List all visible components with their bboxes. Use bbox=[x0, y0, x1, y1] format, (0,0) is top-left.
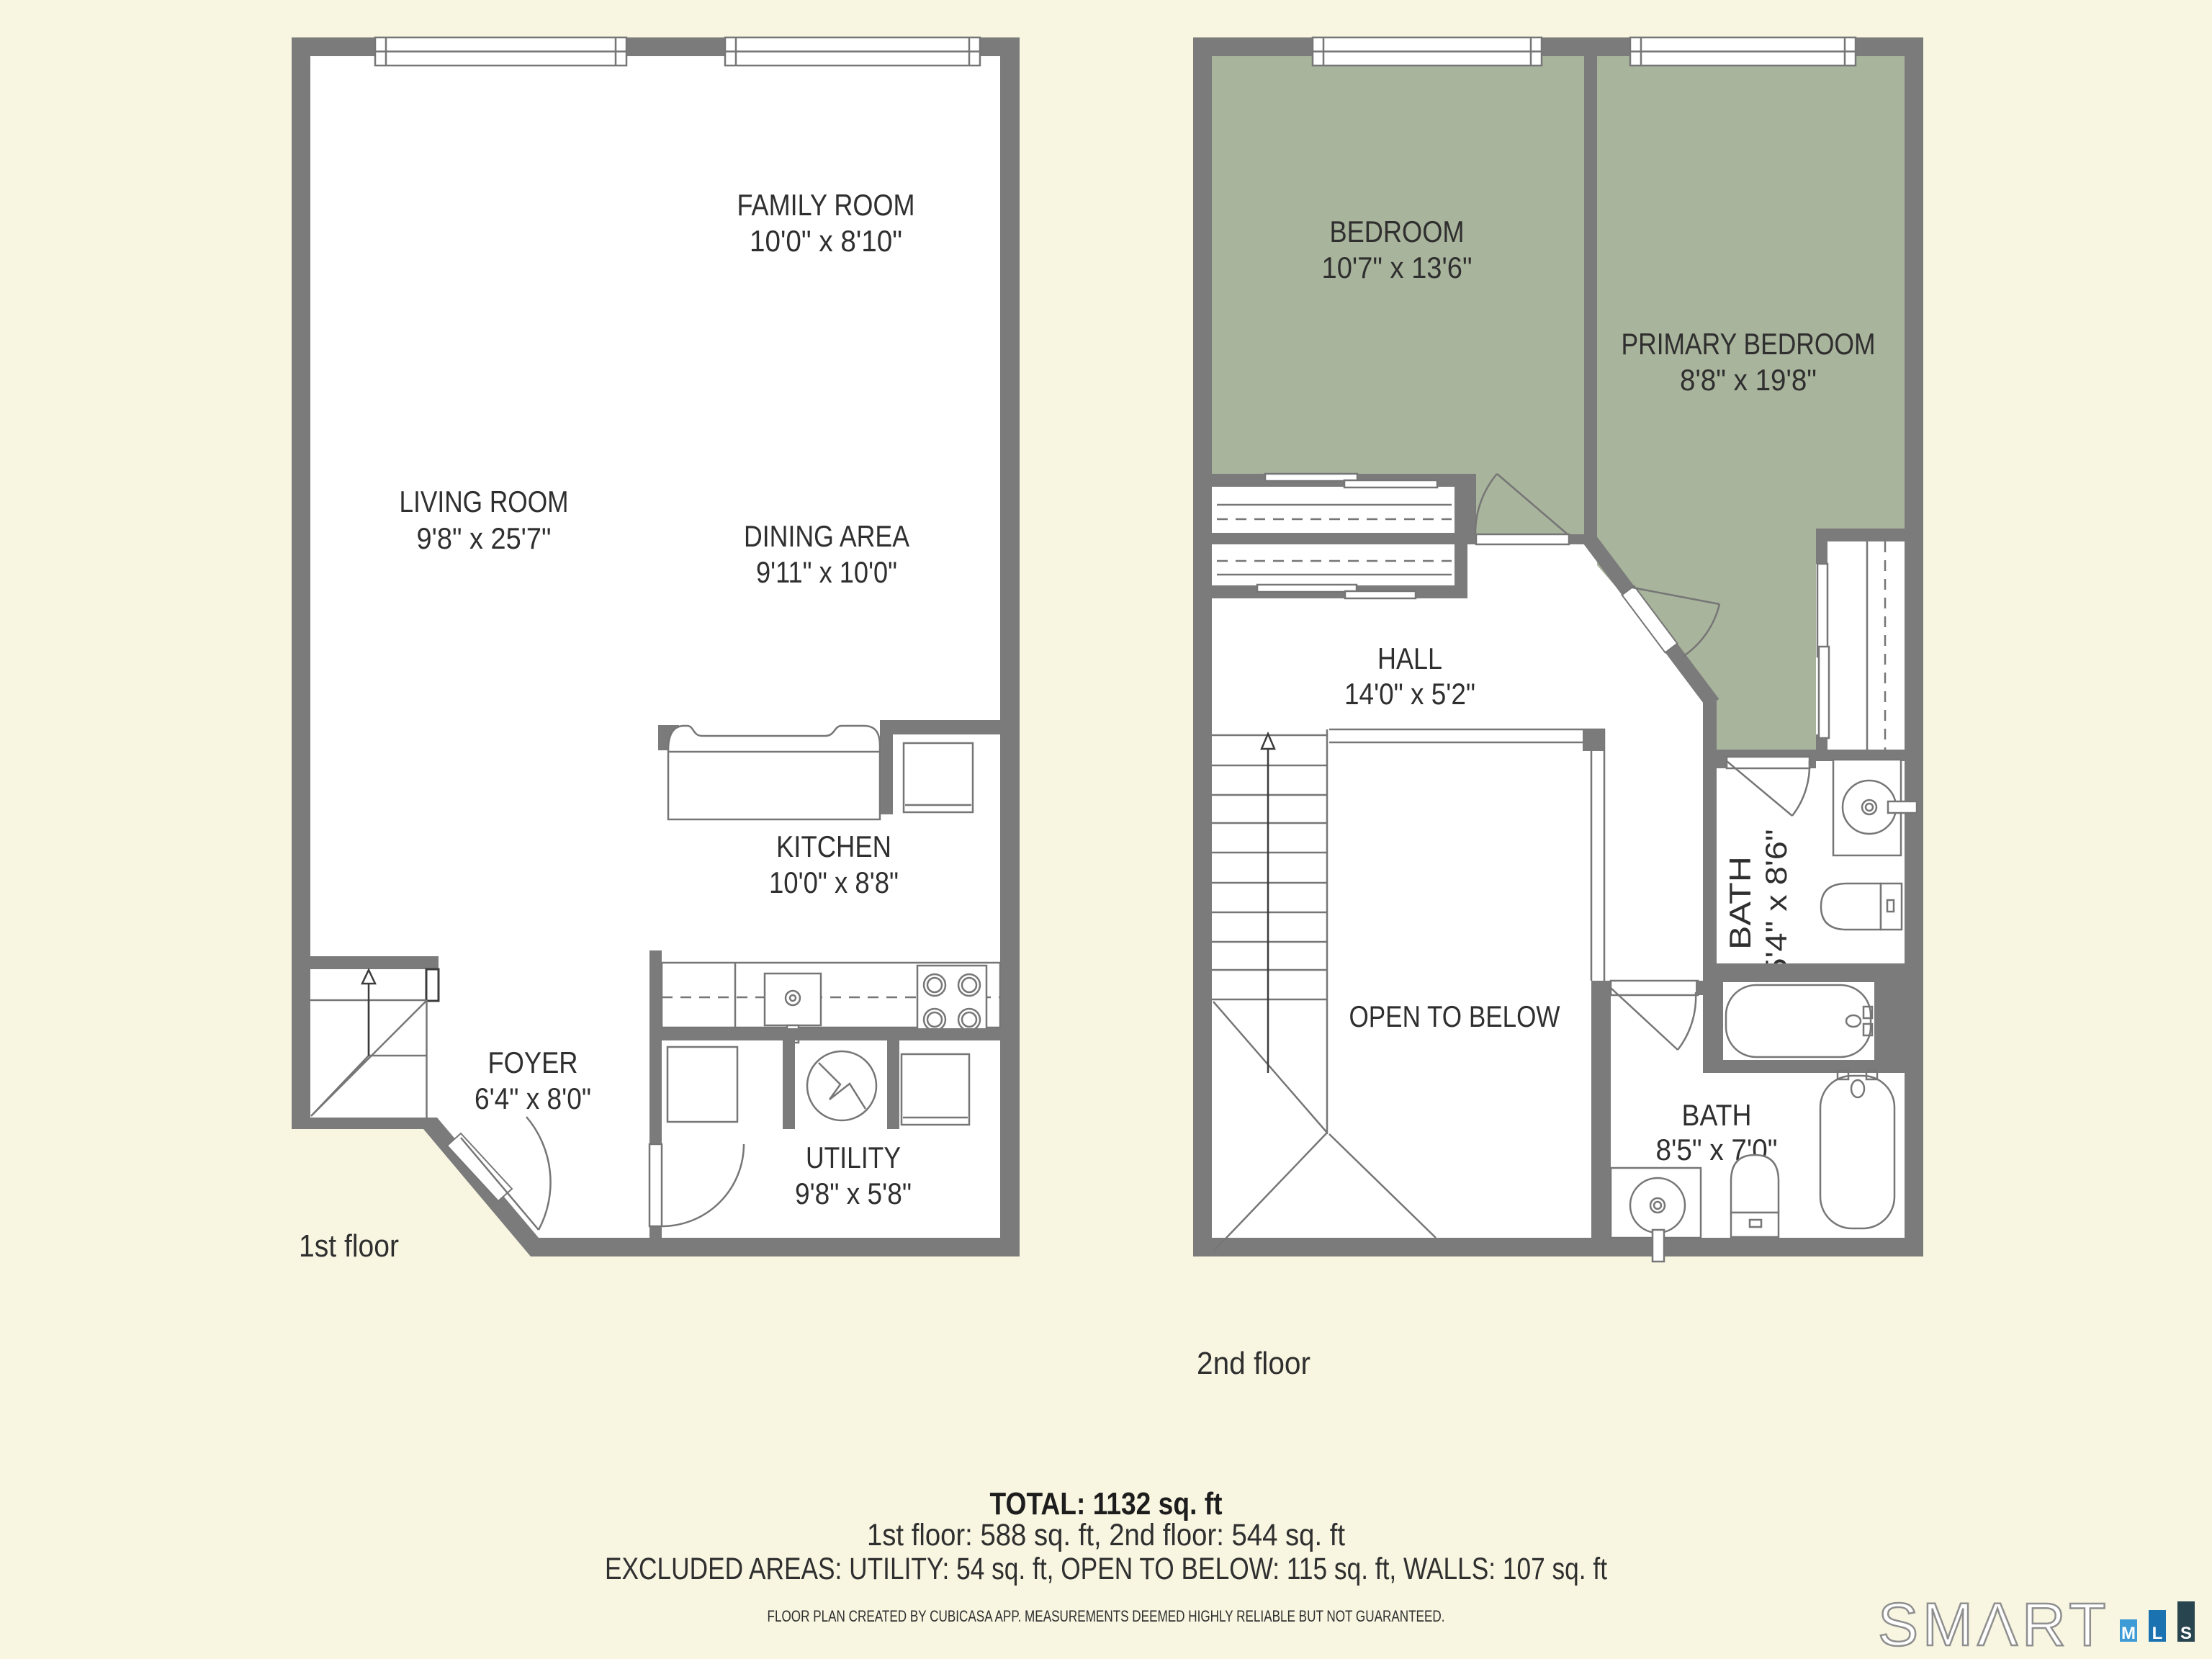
svg-text:EXCLUDED AREAS: UTILITY: 54 sq: EXCLUDED AREAS: UTILITY: 54 sq. ft, OPEN… bbox=[605, 1552, 1607, 1586]
svg-text:FLOOR PLAN CREATED BY CUBICASA: FLOOR PLAN CREATED BY CUBICASA APP. MEAS… bbox=[768, 1607, 1445, 1625]
svg-text:9'8" x 5'8": 9'8" x 5'8" bbox=[795, 1177, 912, 1210]
svg-text:BEDROOM: BEDROOM bbox=[1330, 215, 1465, 248]
svg-text:9'11" x 10'0": 9'11" x 10'0" bbox=[756, 555, 897, 589]
svg-text:BATH: BATH bbox=[1723, 856, 1757, 950]
svg-text:2nd floor: 2nd floor bbox=[1197, 1346, 1310, 1381]
svg-text:1st floor: 588 sq. ft, 2nd flo: 1st floor: 588 sq. ft, 2nd floor: 544 sq… bbox=[867, 1518, 1345, 1552]
svg-text:6'4" x 8'0": 6'4" x 8'0" bbox=[475, 1082, 591, 1115]
svg-text:SMΛRT: SMΛRT bbox=[1878, 1591, 2110, 1658]
svg-text:LIVING ROOM: LIVING ROOM bbox=[400, 485, 569, 518]
svg-text:10'7" x 13'6": 10'7" x 13'6" bbox=[1322, 251, 1473, 284]
svg-text:M: M bbox=[2121, 1624, 2136, 1643]
svg-text:FOYER: FOYER bbox=[488, 1046, 578, 1079]
svg-text:FAMILY ROOM: FAMILY ROOM bbox=[737, 188, 915, 222]
svg-text:OPEN TO BELOW: OPEN TO BELOW bbox=[1349, 999, 1560, 1033]
svg-text:1st floor: 1st floor bbox=[299, 1228, 399, 1264]
svg-text:UTILITY: UTILITY bbox=[806, 1141, 901, 1174]
svg-text:10'0" x 8'8": 10'0" x 8'8" bbox=[769, 866, 899, 899]
svg-text:PRIMARY BEDROOM: PRIMARY BEDROOM bbox=[1622, 327, 1876, 361]
svg-text:9'8" x 25'7": 9'8" x 25'7" bbox=[417, 521, 552, 555]
svg-text:KITCHEN: KITCHEN bbox=[776, 829, 891, 863]
svg-text:8'8" x 19'8": 8'8" x 19'8" bbox=[1680, 363, 1817, 397]
svg-text:L: L bbox=[2152, 1624, 2163, 1643]
svg-text:TOTAL: 1132 sq. ft: TOTAL: 1132 sq. ft bbox=[990, 1486, 1223, 1521]
svg-text:14'0" x 5'2": 14'0" x 5'2" bbox=[1344, 677, 1475, 711]
svg-text:BATH: BATH bbox=[1682, 1098, 1752, 1132]
svg-text:HALL: HALL bbox=[1377, 642, 1442, 675]
svg-text:5'4" x 8'6": 5'4" x 8'6" bbox=[1759, 829, 1793, 977]
svg-text:S: S bbox=[2180, 1624, 2192, 1643]
svg-text:DINING AREA: DINING AREA bbox=[744, 519, 909, 553]
svg-text:10'0" x 8'10": 10'0" x 8'10" bbox=[750, 224, 902, 258]
